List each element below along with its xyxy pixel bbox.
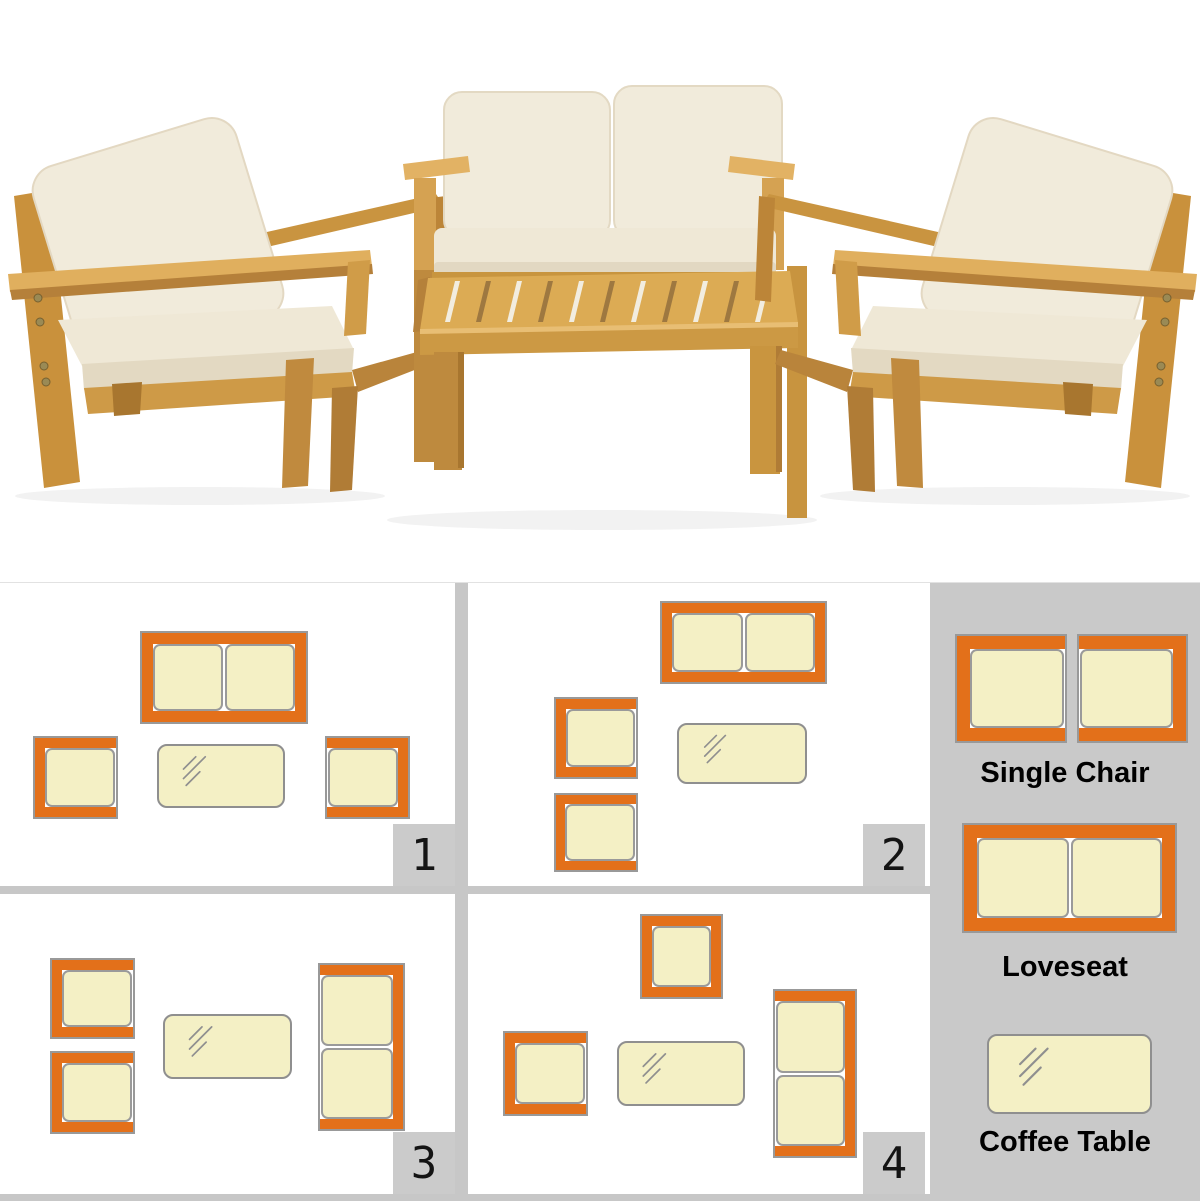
seat-cushion (321, 1048, 393, 1119)
seat-cushion (321, 975, 393, 1046)
glass-shine-icon (683, 729, 752, 768)
seat-cushion (515, 1043, 585, 1104)
legend-label: Single Chair (930, 757, 1200, 790)
chair-symbol (554, 793, 638, 872)
seat-cushion (565, 804, 635, 861)
seat-cushion (970, 649, 1064, 728)
chair-symbol (325, 736, 410, 819)
backrest-bar (1079, 636, 1186, 649)
seat-cushion (672, 613, 743, 672)
backrest-bar (957, 636, 1065, 649)
backrest-bar (1079, 728, 1186, 741)
backrest-bar (556, 861, 636, 870)
floor-shadow (387, 510, 817, 530)
floor-shadow (15, 487, 385, 505)
backrest-bar (295, 633, 306, 722)
backrest-bar (815, 603, 825, 682)
backrest-bar (957, 636, 970, 741)
seat-cushion (776, 1001, 845, 1073)
legend-label: Loveseat (930, 951, 1200, 984)
product-photo-illustration (0, 0, 1200, 582)
seat-cushion (1071, 838, 1163, 918)
backrest-bar (556, 795, 565, 870)
backrest-bar (35, 807, 116, 817)
backrest-bar (52, 960, 133, 970)
backrest-bar (642, 916, 652, 997)
floor-shadow (820, 487, 1190, 505)
product-photo (0, 0, 1200, 582)
backrest-bar (662, 672, 825, 682)
seat-cushion (62, 1063, 132, 1122)
backrest-bar (35, 738, 116, 748)
coffee-table-symbol (987, 1034, 1152, 1114)
backrest-bar (642, 916, 721, 926)
layout-diagrams: 1 2 3 4 Single ChairLoveseatCoffee Table (0, 582, 1200, 1200)
glass-shine-icon (163, 750, 231, 791)
glass-shine-icon (993, 1040, 1082, 1092)
seat-cushion (62, 970, 132, 1027)
loveseat-symbol (773, 989, 857, 1158)
backrest-bar (556, 795, 636, 804)
loveseat-symbol (140, 631, 308, 724)
horizontal-divider (0, 886, 930, 894)
backrest-bar (142, 633, 306, 644)
backrest-bar (556, 699, 636, 709)
backrest-bar (327, 807, 408, 817)
layout-panel-1: 1 (0, 583, 455, 886)
single-chair-left-illustration (8, 112, 450, 492)
layout-panel-3: 3 (0, 894, 455, 1194)
backrest-bar (320, 965, 403, 975)
glass-shine-icon (169, 1020, 238, 1061)
backrest-bar (662, 603, 825, 613)
glass-shine-icon (623, 1047, 691, 1088)
backrest-bar (556, 767, 636, 777)
chair-symbol (33, 736, 118, 819)
loveseat-symbol (318, 963, 405, 1131)
seat-cushion (328, 748, 398, 807)
backrest-bar (964, 918, 1175, 931)
backrest-bar (711, 916, 721, 997)
backrest-bar (556, 699, 566, 777)
backrest-bar (52, 1122, 133, 1132)
coffee-table-symbol (677, 723, 807, 784)
backrest-bar (964, 825, 1175, 838)
layout-panel-4: 4 (468, 894, 930, 1194)
seat-cushion (225, 644, 295, 711)
seat-cushion (566, 709, 635, 767)
backrest-bar (142, 633, 153, 722)
backrest-bar (1162, 825, 1175, 931)
chair-symbol (1077, 634, 1188, 743)
backrest-bar (52, 960, 62, 1037)
backrest-bar (142, 711, 306, 722)
backrest-bar (35, 738, 45, 817)
coffee-table-symbol (617, 1041, 745, 1106)
chair-symbol (640, 914, 723, 999)
seat-cushion (45, 748, 115, 807)
chair-symbol (50, 958, 135, 1039)
coffee-table-illustration (413, 271, 798, 474)
seat-cushion (1080, 649, 1173, 728)
legend-panel: Single ChairLoveseatCoffee Table (930, 583, 1200, 1201)
loveseat-symbol (962, 823, 1177, 933)
seat-cushion (977, 838, 1069, 918)
chair-symbol (50, 1051, 135, 1134)
backrest-bar (957, 728, 1065, 741)
backrest-bar (52, 1053, 62, 1132)
panel-number-badge: 4 (863, 1132, 925, 1194)
seat-cushion (153, 644, 223, 711)
seat-cushion (652, 926, 711, 987)
backrest-bar (964, 825, 977, 931)
legend-label: Coffee Table (930, 1126, 1200, 1159)
backrest-bar (327, 738, 408, 748)
chair-symbol (554, 697, 638, 779)
backrest-bar (505, 1033, 515, 1114)
panel-number-badge: 3 (393, 1132, 455, 1194)
backrest-bar (505, 1104, 586, 1114)
backrest-bar (52, 1053, 133, 1063)
panel-number-badge: 2 (863, 824, 925, 886)
backrest-bar (52, 1027, 133, 1037)
backrest-bar (845, 991, 855, 1156)
backrest-bar (642, 987, 721, 997)
backrest-bar (662, 603, 672, 682)
seat-cushion (776, 1075, 845, 1147)
backrest-bar (398, 738, 408, 817)
coffee-table-symbol (157, 744, 285, 808)
backrest-bar (320, 1119, 403, 1129)
chair-symbol (503, 1031, 588, 1116)
backrest-bar (775, 991, 855, 1001)
backrest-bar (505, 1033, 586, 1043)
seat-cushion (745, 613, 816, 672)
chair-symbol (955, 634, 1067, 743)
backrest-bar (1173, 636, 1186, 741)
coffee-table-symbol (163, 1014, 292, 1079)
single-chair-right-illustration (755, 112, 1197, 492)
backrest-bar (775, 1146, 855, 1156)
backrest-bar (393, 965, 403, 1129)
panel-number-badge: 1 (393, 824, 455, 886)
loveseat-symbol (660, 601, 827, 684)
layout-panel-2: 2 (468, 583, 930, 886)
